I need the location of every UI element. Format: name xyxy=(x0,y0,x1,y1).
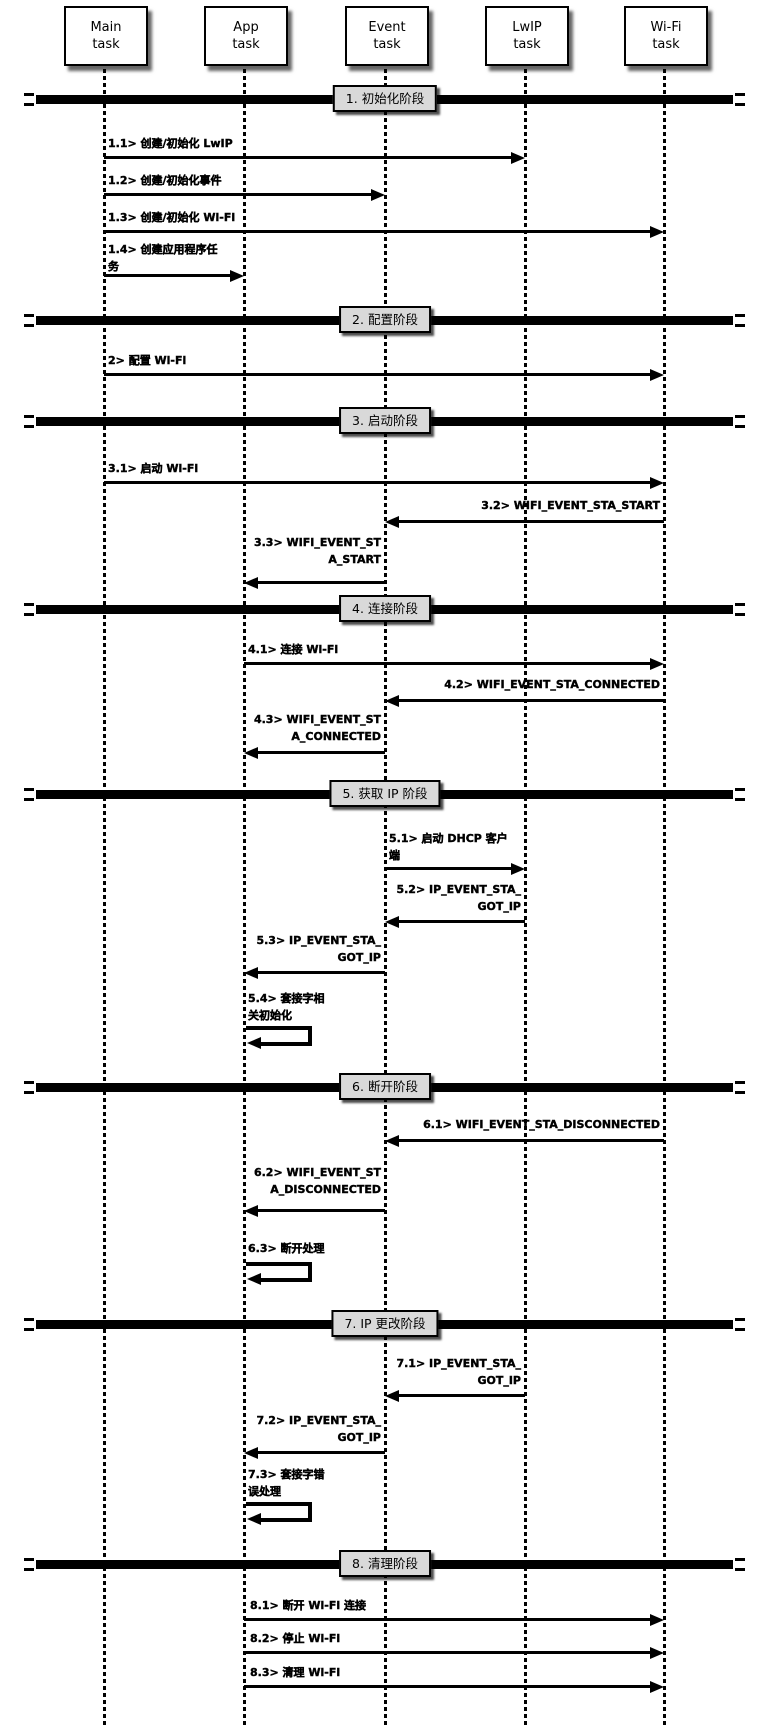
phase-separator-cap-right xyxy=(735,314,745,327)
arrow-5-2-arrowhead xyxy=(385,916,399,928)
message-4-2-label-line: 4.2> WIFI_EVENT_STA_CONNECTED xyxy=(444,678,660,691)
task-box-main-task: Maintask xyxy=(64,6,148,66)
arrow-1-3-arrowhead xyxy=(650,226,664,238)
message-1-4-label-line: 务 xyxy=(108,258,119,274)
arrow-4-3-arrowhead xyxy=(244,747,258,759)
message-4-1-label-line: 4.1> 连接 Wi-Fi xyxy=(248,641,338,657)
message-5-2-label-line: GOT_IP xyxy=(477,900,521,913)
self-loop-6-3-top xyxy=(246,1262,312,1266)
phase-label-8: 8. 清理阶段 xyxy=(339,1550,431,1577)
phase-separator-cap-left xyxy=(24,1558,34,1571)
arrow-7-1-line xyxy=(396,1394,525,1397)
task-box-lwip-task: LwIPtask xyxy=(485,6,569,66)
message-7-2-label-line: 7.2> IP_EVENT_STA_ xyxy=(256,1414,381,1427)
message-6-2-label-line: A_DISCONNECTED xyxy=(270,1183,381,1196)
arrow-2-line xyxy=(104,373,653,376)
arrow-3-3-line xyxy=(255,581,385,584)
phase-separator-cap-left xyxy=(24,1081,34,1094)
arrow-4-2-arrowhead xyxy=(385,695,399,707)
arrow-8-1-line xyxy=(244,1618,653,1621)
phase-separator-cap-right xyxy=(735,788,745,801)
phase-label-4: 4. 连接阶段 xyxy=(339,595,431,622)
task-label-line: task xyxy=(373,36,400,53)
phase-separator-cap-left xyxy=(24,788,34,801)
arrow-8-2-arrowhead xyxy=(650,1647,664,1659)
self-loop-7-3-top xyxy=(246,1502,312,1506)
task-label-line: task xyxy=(513,36,540,53)
phase-separator-cap-left xyxy=(24,603,34,616)
self-loop-7-3-bottom xyxy=(259,1518,312,1522)
arrow-7-2-arrowhead xyxy=(244,1447,258,1459)
arrow-8-1-arrowhead xyxy=(650,1614,664,1626)
task-box-app-task: Apptask xyxy=(204,6,288,66)
arrow-4-2-line xyxy=(396,699,664,702)
phase-label-6: 6. 断开阶段 xyxy=(339,1073,431,1100)
phase-label-7: 7. IP 更改阶段 xyxy=(331,1310,438,1337)
phase-label-1: 1. 初始化阶段 xyxy=(333,85,437,112)
message-6-1-label-line: 6.1> WIFI_EVENT_STA_DISCONNECTED xyxy=(423,1118,660,1131)
message-3-3-label-line: A_START xyxy=(328,553,381,566)
message-7-3-label-line: 误处理 xyxy=(248,1483,281,1499)
phase-label-2: 2. 配置阶段 xyxy=(339,306,431,333)
message-7-1-label-line: 7.1> IP_EVENT_STA_ xyxy=(396,1357,521,1370)
self-loop-6-3-arrowhead xyxy=(247,1273,261,1285)
arrow-1-1-line xyxy=(104,156,514,159)
arrow-8-2-line xyxy=(244,1651,653,1654)
task-label-line: Wi-Fi xyxy=(650,19,681,36)
arrow-4-1-line xyxy=(244,662,653,665)
message-1-3-label-line: 1.3> 创建/初始化 Wi-Fi xyxy=(108,209,235,225)
message-4-3-label-line: A_CONNECTED xyxy=(291,730,381,743)
message-8-2-label-line: 8.2> 停止 Wi-Fi xyxy=(250,1630,340,1646)
phase-separator-cap-right xyxy=(735,1558,745,1571)
phase-separator-cap-left xyxy=(24,415,34,428)
message-3-3-label-line: 3.3> WIFI_EVENT_ST xyxy=(254,536,381,549)
arrow-3-2-arrowhead xyxy=(385,516,399,528)
message-6-3-label-line: 6.3> 断开处理 xyxy=(248,1240,325,1256)
phase-separator-cap-right xyxy=(735,415,745,428)
lifeline-wifi-task xyxy=(663,62,666,1726)
arrow-6-1-arrowhead xyxy=(385,1135,399,1147)
message-8-1-label-line: 8.1> 断开 Wi-Fi 连接 xyxy=(250,1597,366,1613)
arrow-3-1-line xyxy=(104,481,653,484)
message-8-3-label-line: 8.3> 清理 Wi-Fi xyxy=(250,1664,340,1680)
message-5-1-label-line: 端 xyxy=(389,847,400,863)
arrow-4-3-line xyxy=(255,751,385,754)
lifeline-app-task xyxy=(243,62,246,1726)
arrow-7-2-line xyxy=(255,1451,385,1454)
message-1-1-label-line: 1.1> 创建/初始化 LwIP xyxy=(108,135,233,151)
self-loop-5-4-bottom xyxy=(259,1042,312,1046)
arrow-1-1-arrowhead xyxy=(511,152,525,164)
arrow-3-2-line xyxy=(396,520,664,523)
phase-separator-cap-right xyxy=(735,603,745,616)
task-label-line: App xyxy=(233,19,258,36)
phase-separator-cap-right xyxy=(735,93,745,106)
message-6-2-label-line: 6.2> WIFI_EVENT_ST xyxy=(254,1166,381,1179)
message-2-label-line: 2> 配置 Wi-Fi xyxy=(108,352,186,368)
self-loop-6-3-bottom xyxy=(259,1278,312,1282)
message-1-2-label-line: 1.2> 创建/初始化事件 xyxy=(108,172,222,188)
message-7-2-label-line: GOT_IP xyxy=(337,1431,381,1444)
arrow-5-1-arrowhead xyxy=(511,863,525,875)
message-3-1-label-line: 3.1> 启动 Wi-Fi xyxy=(108,460,198,476)
arrow-6-2-arrowhead xyxy=(244,1205,258,1217)
message-4-3-label-line: 4.3> WIFI_EVENT_ST xyxy=(254,713,381,726)
arrow-7-1-arrowhead xyxy=(385,1390,399,1402)
arrow-1-2-line xyxy=(104,193,374,196)
phase-separator-cap-left xyxy=(24,93,34,106)
message-5-2-label-line: 5.2> IP_EVENT_STA_ xyxy=(396,883,521,896)
task-label-line: LwIP xyxy=(512,19,542,36)
task-box-wifi-task: Wi-Fitask xyxy=(624,6,708,66)
self-loop-7-3-arrowhead xyxy=(247,1513,261,1525)
message-3-2-label-line: 3.2> WIFI_EVENT_STA_START xyxy=(481,499,660,512)
arrow-3-3-arrowhead xyxy=(244,577,258,589)
phase-label-5: 5. 获取 IP 阶段 xyxy=(329,780,440,807)
lifeline-main-task xyxy=(103,62,106,1726)
arrow-5-3-line xyxy=(255,971,385,974)
task-label-line: Event xyxy=(368,19,405,36)
arrow-6-1-line xyxy=(396,1139,664,1142)
phase-separator-cap-right xyxy=(735,1318,745,1331)
task-label-line: task xyxy=(92,36,119,53)
arrow-2-arrowhead xyxy=(650,369,664,381)
arrow-5-3-arrowhead xyxy=(244,967,258,979)
message-5-4-label-line: 关初始化 xyxy=(248,1007,292,1023)
task-label-line: Main xyxy=(90,19,121,36)
message-5-3-label-line: GOT_IP xyxy=(337,951,381,964)
arrow-1-3-line xyxy=(104,230,653,233)
phase-separator-cap-left xyxy=(24,1318,34,1331)
task-box-event-task: Eventtask xyxy=(345,6,429,66)
message-5-3-label-line: 5.3> IP_EVENT_STA_ xyxy=(256,934,381,947)
arrow-5-1-line xyxy=(385,867,514,870)
lifeline-lwip-task xyxy=(524,62,527,1726)
task-label-line: task xyxy=(232,36,259,53)
arrow-8-3-arrowhead xyxy=(650,1681,664,1693)
message-7-1-label-line: GOT_IP xyxy=(477,1374,521,1387)
message-7-3-label-line: 7.3> 套接字错 xyxy=(248,1466,325,1482)
phase-separator-cap-left xyxy=(24,314,34,327)
arrow-6-2-line xyxy=(255,1209,385,1212)
message-5-1-label-line: 5.1> 启动 DHCP 客户 xyxy=(389,830,508,846)
arrow-3-1-arrowhead xyxy=(650,477,664,489)
task-label-line: task xyxy=(652,36,679,53)
arrow-5-2-line xyxy=(396,920,525,923)
arrow-4-1-arrowhead xyxy=(650,658,664,670)
arrow-1-2-arrowhead xyxy=(371,189,385,201)
phase-separator-cap-right xyxy=(735,1081,745,1094)
arrow-8-3-line xyxy=(244,1685,653,1688)
message-1-4-label-line: 1.4> 创建应用程序任 xyxy=(108,241,218,257)
message-5-4-label-line: 5.4> 套接字相 xyxy=(248,990,325,1006)
phase-label-3: 3. 启动阶段 xyxy=(339,407,431,434)
arrow-1-4-line xyxy=(104,274,233,277)
arrow-1-4-arrowhead xyxy=(230,270,244,282)
self-loop-5-4-arrowhead xyxy=(247,1037,261,1049)
wifi-sequence-diagram: MaintaskApptaskEventtaskLwIPtaskWi-Fitas… xyxy=(0,0,768,1726)
self-loop-5-4-top xyxy=(246,1026,312,1030)
